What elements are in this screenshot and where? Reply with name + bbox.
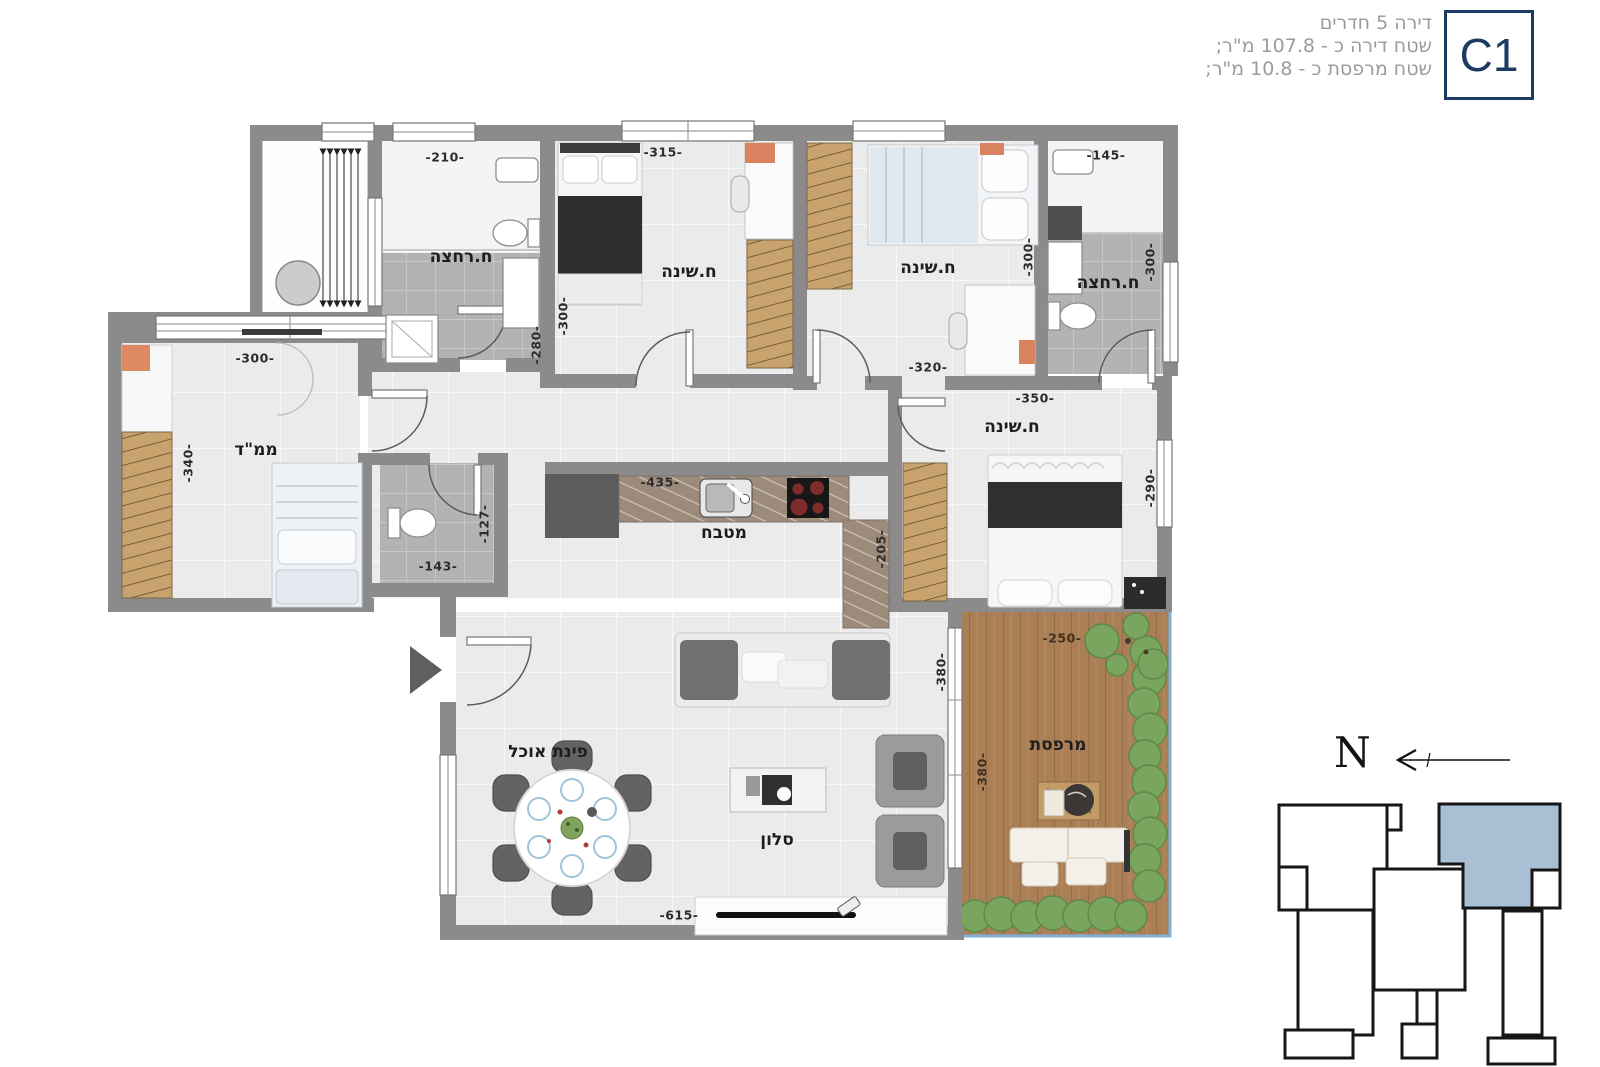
room-label-dining: פינת אוכל xyxy=(508,742,588,762)
room-label-balcony: מרפסת xyxy=(1030,735,1087,755)
room-label-bathroom-2: ח.רחצה xyxy=(1077,273,1140,293)
entrance-arrow-icon xyxy=(410,646,442,694)
north-label: N xyxy=(1334,728,1371,777)
dim-145: -145- xyxy=(1087,148,1126,163)
building-key-plan xyxy=(1262,798,1562,1066)
dim-250: -250- xyxy=(1043,631,1082,646)
room-label-safe-room: ממ"ד xyxy=(234,440,277,460)
apartment-area: שטח דירה כ - 107.8 מ"ר; xyxy=(1205,35,1432,58)
dim-380-balcony: -380- xyxy=(975,753,990,792)
dim-205: -205- xyxy=(874,530,889,569)
dim-320: -320- xyxy=(909,360,948,375)
dim-380-living: -380- xyxy=(934,653,949,692)
dim-340: -340- xyxy=(181,444,196,483)
dim-280-bathroom1: -280- xyxy=(529,326,544,365)
apartment-info: דירה 5 חדרים שטח דירה כ - 107.8 מ"ר; שטח… xyxy=(1205,12,1432,81)
dim-315: -315- xyxy=(644,145,683,160)
dim-210: -210- xyxy=(426,150,465,165)
dim-290: -290- xyxy=(1143,469,1158,508)
room-label-bathroom-1: ח.רחצה xyxy=(430,247,493,267)
guest-toilet-fixtures xyxy=(388,508,436,538)
unit-label: C1 xyxy=(1460,28,1519,82)
dim-300-bathroom2: -300- xyxy=(1143,243,1158,282)
dim-143: -143- xyxy=(419,559,458,574)
dim-300-bedroom3: -300- xyxy=(1021,238,1036,277)
dim-350: -350- xyxy=(1016,391,1055,406)
dim-435: -435- xyxy=(641,475,680,490)
room-label-kitchen: מטבח xyxy=(701,523,747,543)
room-label-bedroom-2: ח.שינה xyxy=(661,262,716,282)
north-arrow-icon xyxy=(1384,735,1524,785)
room-label-living: סלון xyxy=(760,830,794,850)
room-label-bedroom-3: ח.שינה xyxy=(900,258,955,278)
dim-300-safe-room: -300- xyxy=(236,351,275,366)
unit-badge: C1 xyxy=(1444,10,1534,100)
dim-300-bedroom2: -300- xyxy=(556,297,571,336)
floor-plan-page: ח.רחצה ח.שינה ח.שינה ח.רחצה ממ"ד ח.שינה … xyxy=(0,0,1600,1067)
room-label-master-bedroom: ח.שינה xyxy=(984,417,1039,437)
balcony-area: שטח מרפסת כ - 10.8 מ"ר; xyxy=(1205,58,1432,81)
boiler xyxy=(276,261,320,305)
dim-615: -615- xyxy=(660,908,699,923)
dim-127: -127- xyxy=(477,505,492,544)
apartment-title: דירה 5 חדרים xyxy=(1205,12,1432,35)
